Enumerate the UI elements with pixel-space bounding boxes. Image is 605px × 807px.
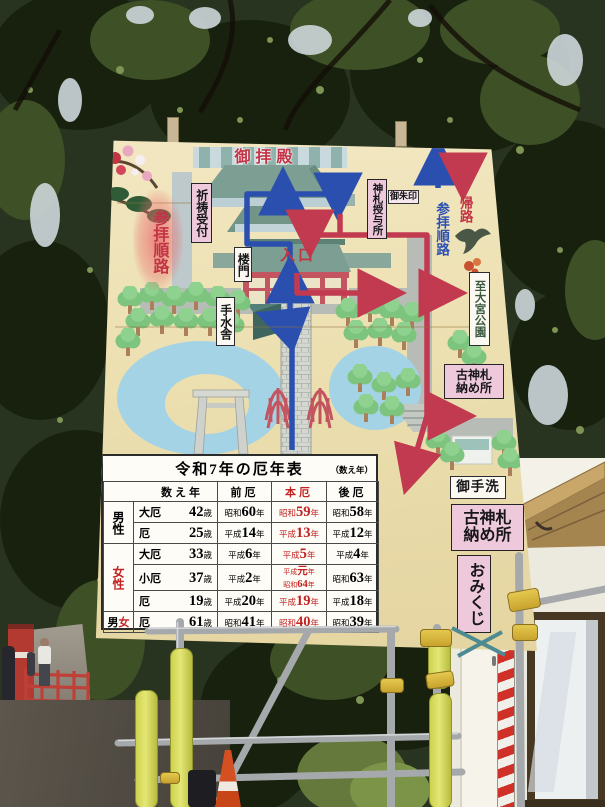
dark-equipment [188,770,216,807]
scaffold-clamp [420,629,452,647]
scaffold-pad [135,690,158,807]
scaffold-clamp [380,678,404,693]
cross-brace [452,628,505,656]
scaffold-clamp [160,772,180,784]
scaffold-clamp [512,624,538,641]
scaffolding [0,0,605,807]
scaffold-pad [429,693,452,807]
photo-of-shrine-sign: 御拝殿 参拝順路 祈祷受付 神札授与所 御朱印 楼門 入口 手水舎 参拝順路 帰… [0,0,605,807]
